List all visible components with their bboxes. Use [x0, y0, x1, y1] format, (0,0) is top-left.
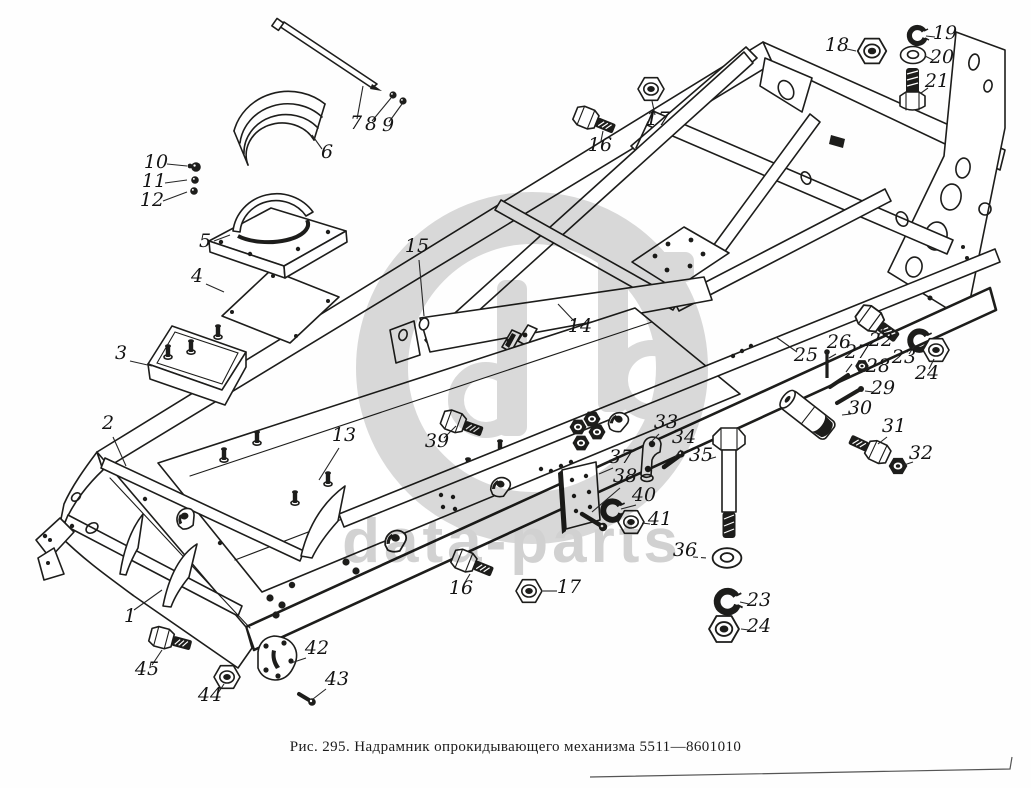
callout-24-right: 24 [914, 362, 939, 384]
part-23-lock-washer-bottom [717, 591, 742, 612]
part-36-washer [713, 548, 742, 568]
callout-3: 3 [115, 342, 127, 364]
watermark-text: data-parts [342, 507, 682, 576]
callout-8: 8 [365, 113, 377, 135]
part-17-nut-bottom [516, 580, 542, 603]
part-6-saddle-strap [234, 91, 325, 165]
part-7-tie-rod [272, 18, 382, 91]
callout-45: 45 [134, 658, 159, 680]
part-18-nut [858, 39, 887, 64]
callout-40: 40 [631, 484, 656, 506]
callout-32: 32 [909, 442, 933, 464]
callout-39: 39 [425, 430, 449, 452]
callout-17-top: 17 [646, 108, 671, 130]
callout-23-right: 23 [891, 346, 916, 368]
part-43-pin [299, 694, 316, 706]
part-42-bracket [258, 636, 297, 680]
callout-6: 6 [321, 141, 333, 163]
part-10-fastener [191, 162, 201, 172]
figure-caption: Рис. 295. Надрамник опрокидывающего меха… [0, 739, 1031, 756]
callout-17-bottom: 17 [557, 576, 582, 598]
callout-15: 15 [405, 235, 429, 257]
callout-18: 18 [825, 34, 849, 56]
callout-16-top: 16 [588, 134, 612, 156]
page-rule-line [590, 757, 1012, 777]
callout-20: 20 [929, 46, 954, 68]
callout-28: 28 [865, 355, 890, 377]
callout-22: 22 [868, 329, 893, 351]
callout-23-bottom: 23 [746, 589, 771, 611]
callout-1: 1 [124, 605, 136, 627]
part-24-nut-bottom [709, 616, 739, 642]
callout-36: 36 [673, 539, 697, 561]
callout-19: 19 [933, 22, 957, 44]
callout-16-bottom: 16 [449, 577, 473, 599]
callout-42: 42 [304, 637, 329, 659]
part-20-washer [901, 47, 926, 64]
callout-9: 9 [382, 114, 394, 136]
callout-2: 2 [101, 412, 114, 434]
callout-12: 12 [140, 189, 164, 211]
part-5-saddle-support [209, 194, 347, 278]
callout-5: 5 [199, 230, 211, 252]
part-35-bolt [713, 428, 745, 538]
part-24-nut-right [923, 339, 949, 362]
callout-35: 35 [689, 444, 713, 466]
callout-21: 21 [924, 70, 949, 92]
callout-31: 31 [882, 415, 906, 437]
callout-29: 29 [870, 377, 895, 399]
part-12-fastener [190, 187, 198, 195]
exploded-parts-drawing: data-parts [0, 0, 1031, 788]
callout-24-bottom: 24 [746, 615, 771, 637]
part-17-nut-top [638, 78, 664, 101]
part-3-support-box [148, 324, 246, 405]
callout-13: 13 [332, 424, 356, 446]
callout-44: 44 [197, 684, 222, 706]
part-32-nut [889, 458, 908, 474]
callout-25: 25 [793, 344, 818, 366]
part-21-bolt [900, 68, 925, 110]
callout-43: 43 [324, 668, 349, 690]
part-9-ball [399, 97, 406, 104]
callout-14: 14 [568, 315, 592, 337]
callout-30: 30 [848, 397, 872, 419]
part-10-fastener [188, 164, 193, 169]
callout-7: 7 [350, 112, 363, 134]
part-8-ball [389, 91, 396, 98]
figure-page: data-parts [0, 0, 1031, 788]
callout-4: 4 [190, 265, 203, 287]
part-11-fastener [191, 176, 199, 184]
callout-41: 41 [647, 508, 672, 530]
